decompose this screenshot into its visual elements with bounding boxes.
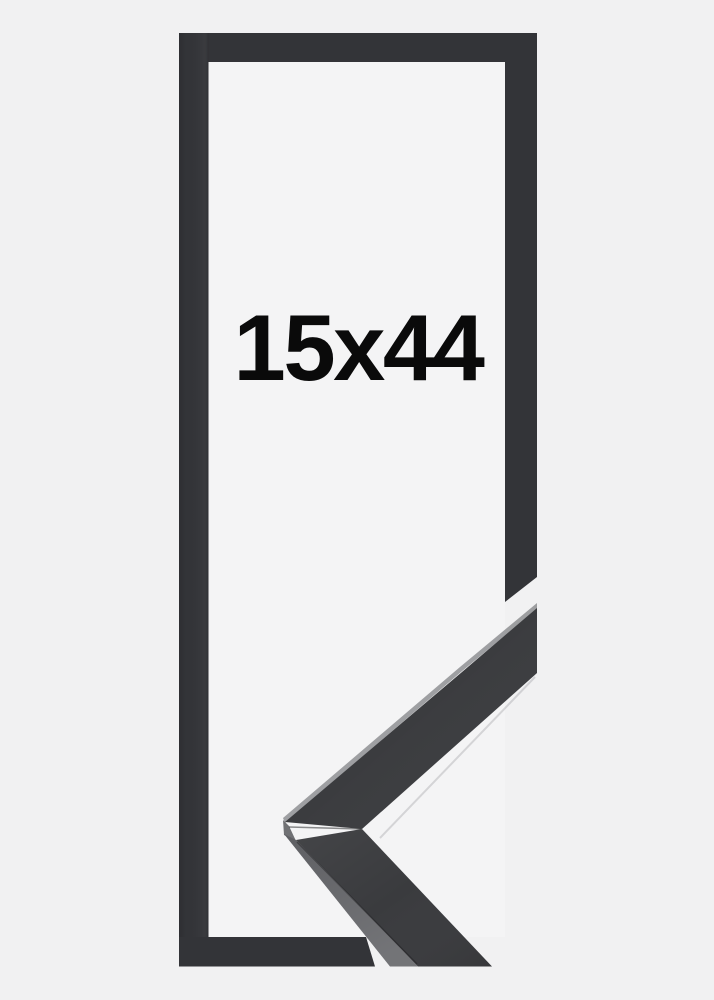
frame-bottom-bar xyxy=(179,937,375,967)
product-image: 15x44 xyxy=(0,0,714,1000)
frame-right-bar xyxy=(505,33,537,602)
frame-graphic: 15x44 xyxy=(0,0,714,1000)
size-label: 15x44 xyxy=(234,295,485,400)
frame-top-bar xyxy=(179,33,537,62)
frame-left-bar-shading xyxy=(179,33,209,967)
